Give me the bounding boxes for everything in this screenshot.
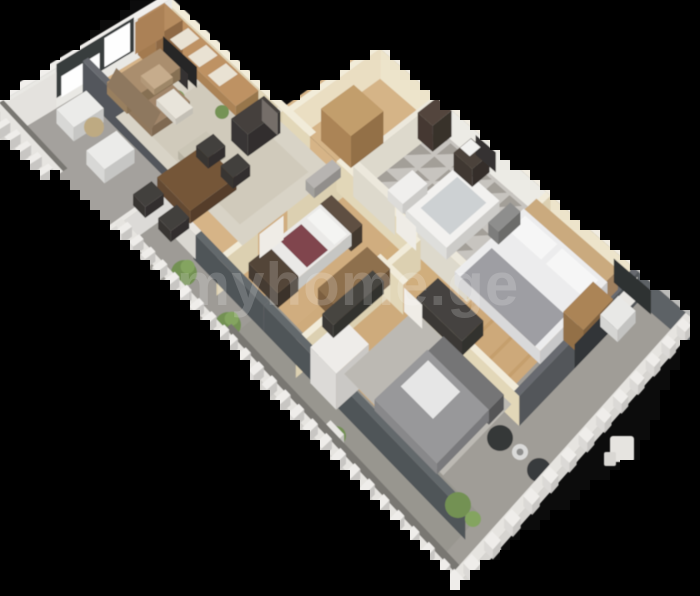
svg-text:myhome.ge: myhome.ge: [177, 251, 519, 318]
